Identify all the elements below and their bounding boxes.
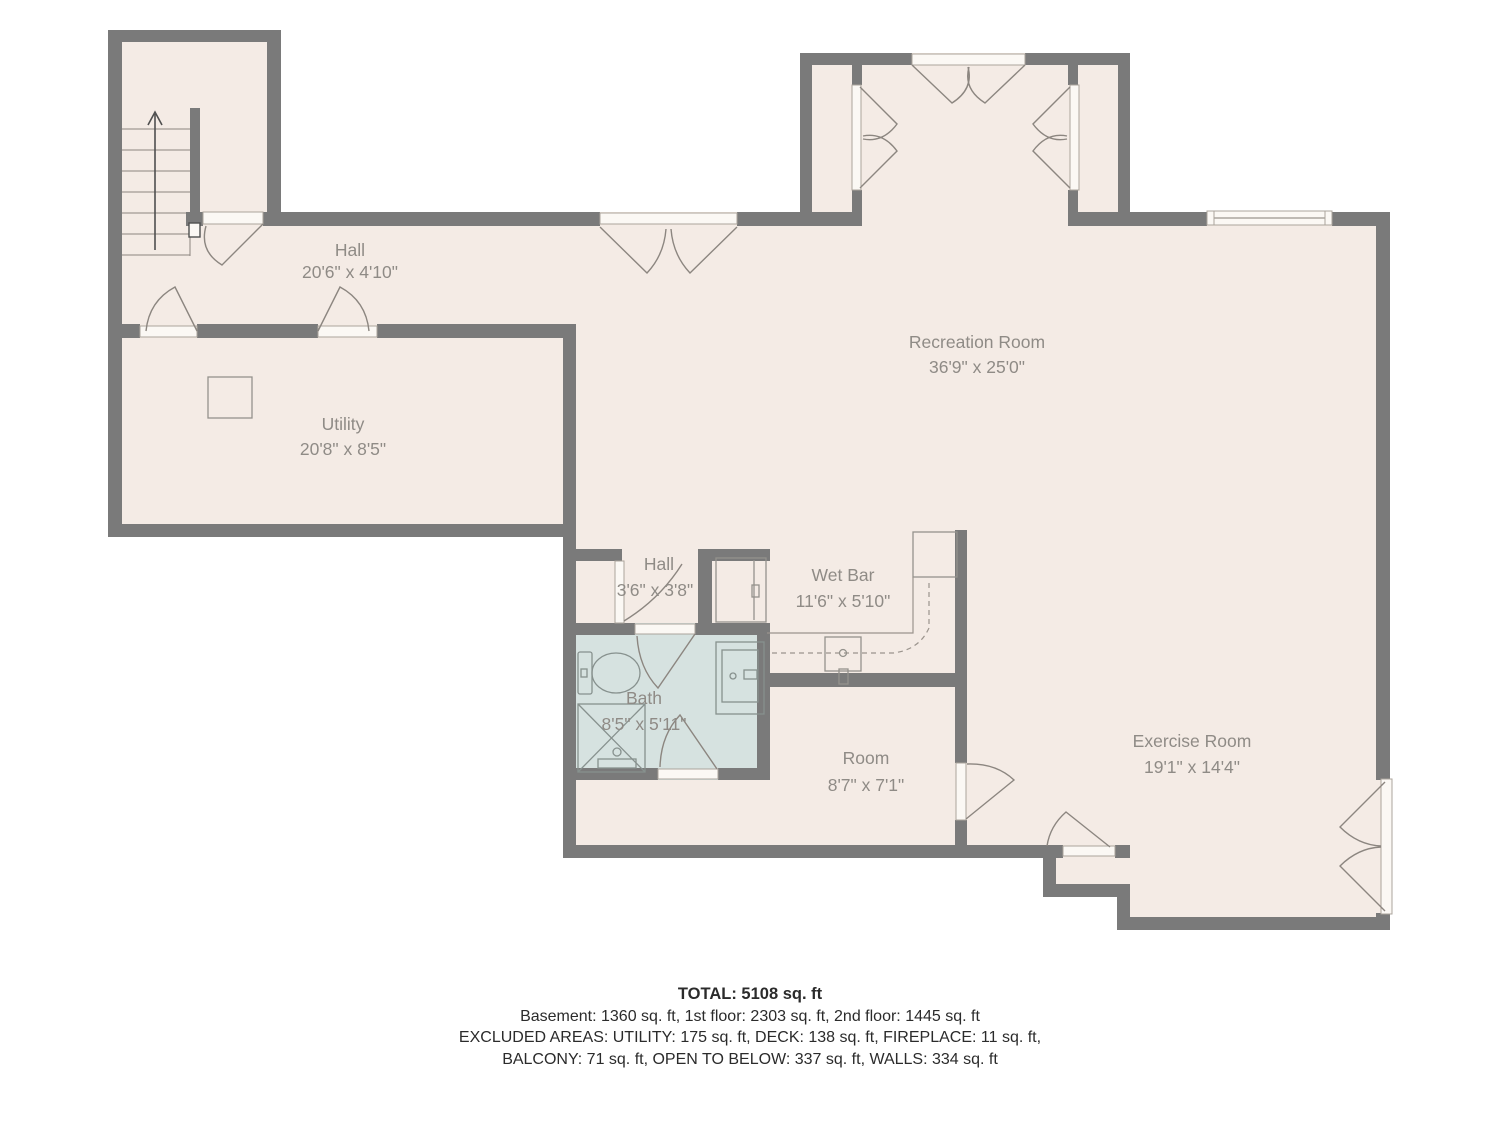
door-sill-utility-left [140, 326, 197, 337]
room-dims-bath: 8'5" x 5'11" [602, 714, 687, 734]
room-dims-utility: 20'8" x 8'5" [300, 439, 386, 459]
door-sill-room [956, 763, 966, 820]
door-sill-bath-bottom [658, 769, 718, 779]
door-leaf-alcove-right [1070, 85, 1079, 190]
room-label-hall-lower: Hall [644, 554, 674, 574]
door-sill-exercise-french [1381, 779, 1392, 914]
room-label-recreation: Recreation Room [909, 332, 1045, 352]
room-dims-room: 8'7" x 7'1" [828, 775, 905, 795]
room-label-wet-bar: Wet Bar [812, 565, 875, 585]
room-dims-hall-upper: 20'6" x 4'10" [302, 262, 398, 282]
room-label-exercise: Exercise Room [1133, 731, 1252, 751]
room-label-hall-upper: Hall [335, 240, 365, 260]
floor-main [563, 212, 1390, 930]
summary-floors: Basement: 1360 sq. ft, 1st floor: 2303 s… [0, 1006, 1500, 1028]
floor-plan-drawing: Hall 20'6" x 4'10" Utility 20'8" x 8'5" … [0, 0, 1500, 1125]
summary-excluded: EXCLUDED AREAS: UTILITY: 175 sq. ft, DEC… [0, 1027, 1500, 1049]
stair-jamb-marker [189, 223, 200, 237]
room-label-bath: Bath [626, 688, 662, 708]
room-label-utility: Utility [322, 414, 365, 434]
window [1207, 211, 1332, 225]
summary-total: TOTAL: 5108 sq. ft [0, 984, 1500, 1006]
floor-entry-alcove [800, 53, 1130, 226]
door-sill-bath-top [635, 624, 695, 634]
door-sill-alcove-top [912, 54, 1025, 65]
floor-plan-page: Hall 20'6" x 4'10" Utility 20'8" x 8'5" … [0, 0, 1500, 1125]
door-sill-exercise-alcove [1063, 846, 1115, 856]
door-sill-stair-room [203, 212, 263, 224]
room-dims-recreation: 36'9" x 25'0" [929, 357, 1025, 377]
summary-excluded-cont: BALCONY: 71 sq. ft, OPEN TO BELOW: 337 s… [0, 1049, 1500, 1071]
door-leaf-alcove-left [852, 85, 861, 190]
room-dims-wet-bar: 11'6" x 5'10" [796, 591, 891, 611]
floor-plan-summary: TOTAL: 5108 sq. ft Basement: 1360 sq. ft… [0, 984, 1500, 1070]
floor-areas [108, 30, 1390, 930]
room-label-room: Room [843, 748, 890, 768]
door-sill-recreation-french [600, 213, 737, 224]
room-dims-hall-lower: 3'6" x 3'8" [617, 580, 694, 600]
room-dims-exercise: 19'1" x 14'4" [1144, 757, 1240, 777]
